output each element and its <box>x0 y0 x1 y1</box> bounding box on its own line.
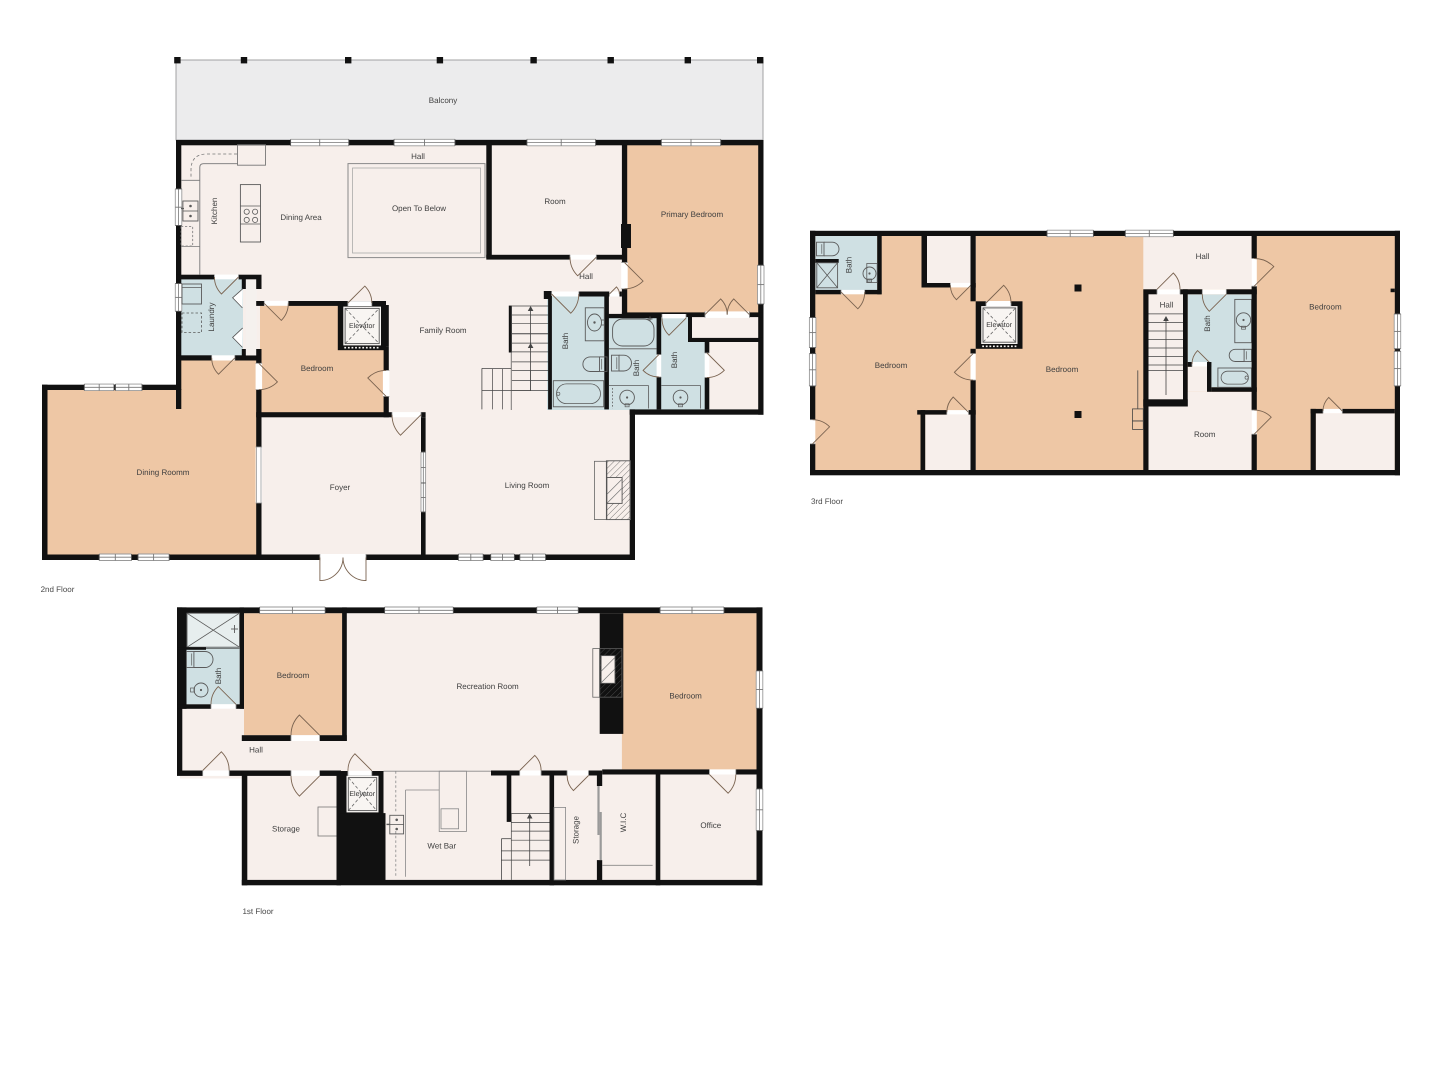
svg-text:Bedroom: Bedroom <box>301 364 334 373</box>
svg-text:Bath: Bath <box>845 257 854 273</box>
svg-text:Bath: Bath <box>670 352 679 368</box>
svg-text:Laundry: Laundry <box>207 303 216 332</box>
svg-text:Room: Room <box>1194 430 1216 439</box>
svg-text:Hall: Hall <box>411 152 425 161</box>
svg-text:Elevator: Elevator <box>349 322 375 330</box>
svg-text:Bedroom: Bedroom <box>875 361 908 370</box>
svg-text:Primary Bedroom: Primary Bedroom <box>661 210 724 219</box>
svg-text:Bath: Bath <box>561 333 570 349</box>
svg-text:Bath: Bath <box>632 360 641 376</box>
svg-text:Elevator: Elevator <box>349 790 375 798</box>
svg-text:W.I.C: W.I.C <box>619 813 628 833</box>
svg-text:Recreation Room: Recreation Room <box>456 682 519 691</box>
svg-text:2nd Floor: 2nd Floor <box>41 585 75 594</box>
svg-text:Office: Office <box>700 821 721 830</box>
svg-text:Foyer: Foyer <box>330 483 351 492</box>
svg-text:Storage: Storage <box>571 815 580 844</box>
svg-text:Hall: Hall <box>1160 301 1174 310</box>
svg-text:Storage: Storage <box>272 825 301 834</box>
svg-text:Kitchen: Kitchen <box>210 198 219 225</box>
svg-text:Wet Bar: Wet Bar <box>427 842 456 851</box>
svg-text:Elevator: Elevator <box>986 321 1012 329</box>
svg-text:Hall: Hall <box>1196 252 1210 261</box>
svg-text:Dining Roomm: Dining Roomm <box>137 468 190 477</box>
svg-text:Bath: Bath <box>214 668 223 684</box>
svg-text:3rd Floor: 3rd Floor <box>811 497 843 506</box>
svg-text:Dining Area: Dining Area <box>280 213 322 222</box>
svg-text:Bedroom: Bedroom <box>1046 365 1079 374</box>
svg-text:Bedroom: Bedroom <box>277 671 310 680</box>
svg-text:Living Room: Living Room <box>505 481 550 490</box>
svg-text:Room: Room <box>544 197 566 206</box>
svg-text:1st Floor: 1st Floor <box>242 907 273 916</box>
svg-text:Bath: Bath <box>1203 315 1212 331</box>
svg-text:Bedroom: Bedroom <box>669 691 702 700</box>
svg-text:Open To Below: Open To Below <box>392 204 446 213</box>
svg-text:Balcony: Balcony <box>429 96 457 105</box>
svg-text:Hall: Hall <box>579 272 593 281</box>
svg-text:Hall: Hall <box>249 746 263 755</box>
svg-text:Bedroom: Bedroom <box>1309 303 1342 312</box>
svg-text:Family Room: Family Room <box>419 326 466 335</box>
